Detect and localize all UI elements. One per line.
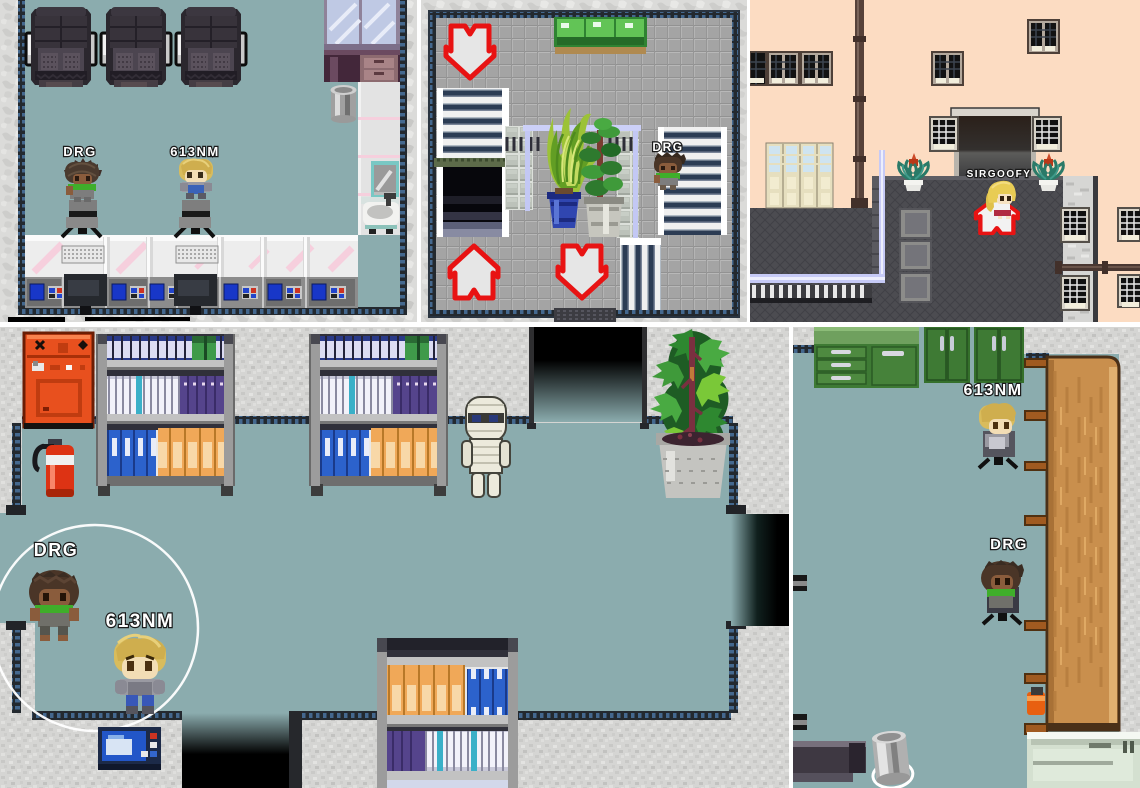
svg-text:DRG: DRG	[652, 140, 683, 154]
svg-text:DRG: DRG	[990, 536, 1028, 553]
svg-text:613NM: 613NM	[170, 144, 219, 159]
svg-text:DRG: DRG	[34, 540, 79, 560]
svg-text:613NM: 613NM	[106, 611, 175, 632]
svg-text:SIRGOOFY: SIRGOOFY	[967, 169, 1032, 180]
svg-text:DRG: DRG	[63, 144, 96, 159]
svg-text:613NM: 613NM	[963, 382, 1022, 399]
